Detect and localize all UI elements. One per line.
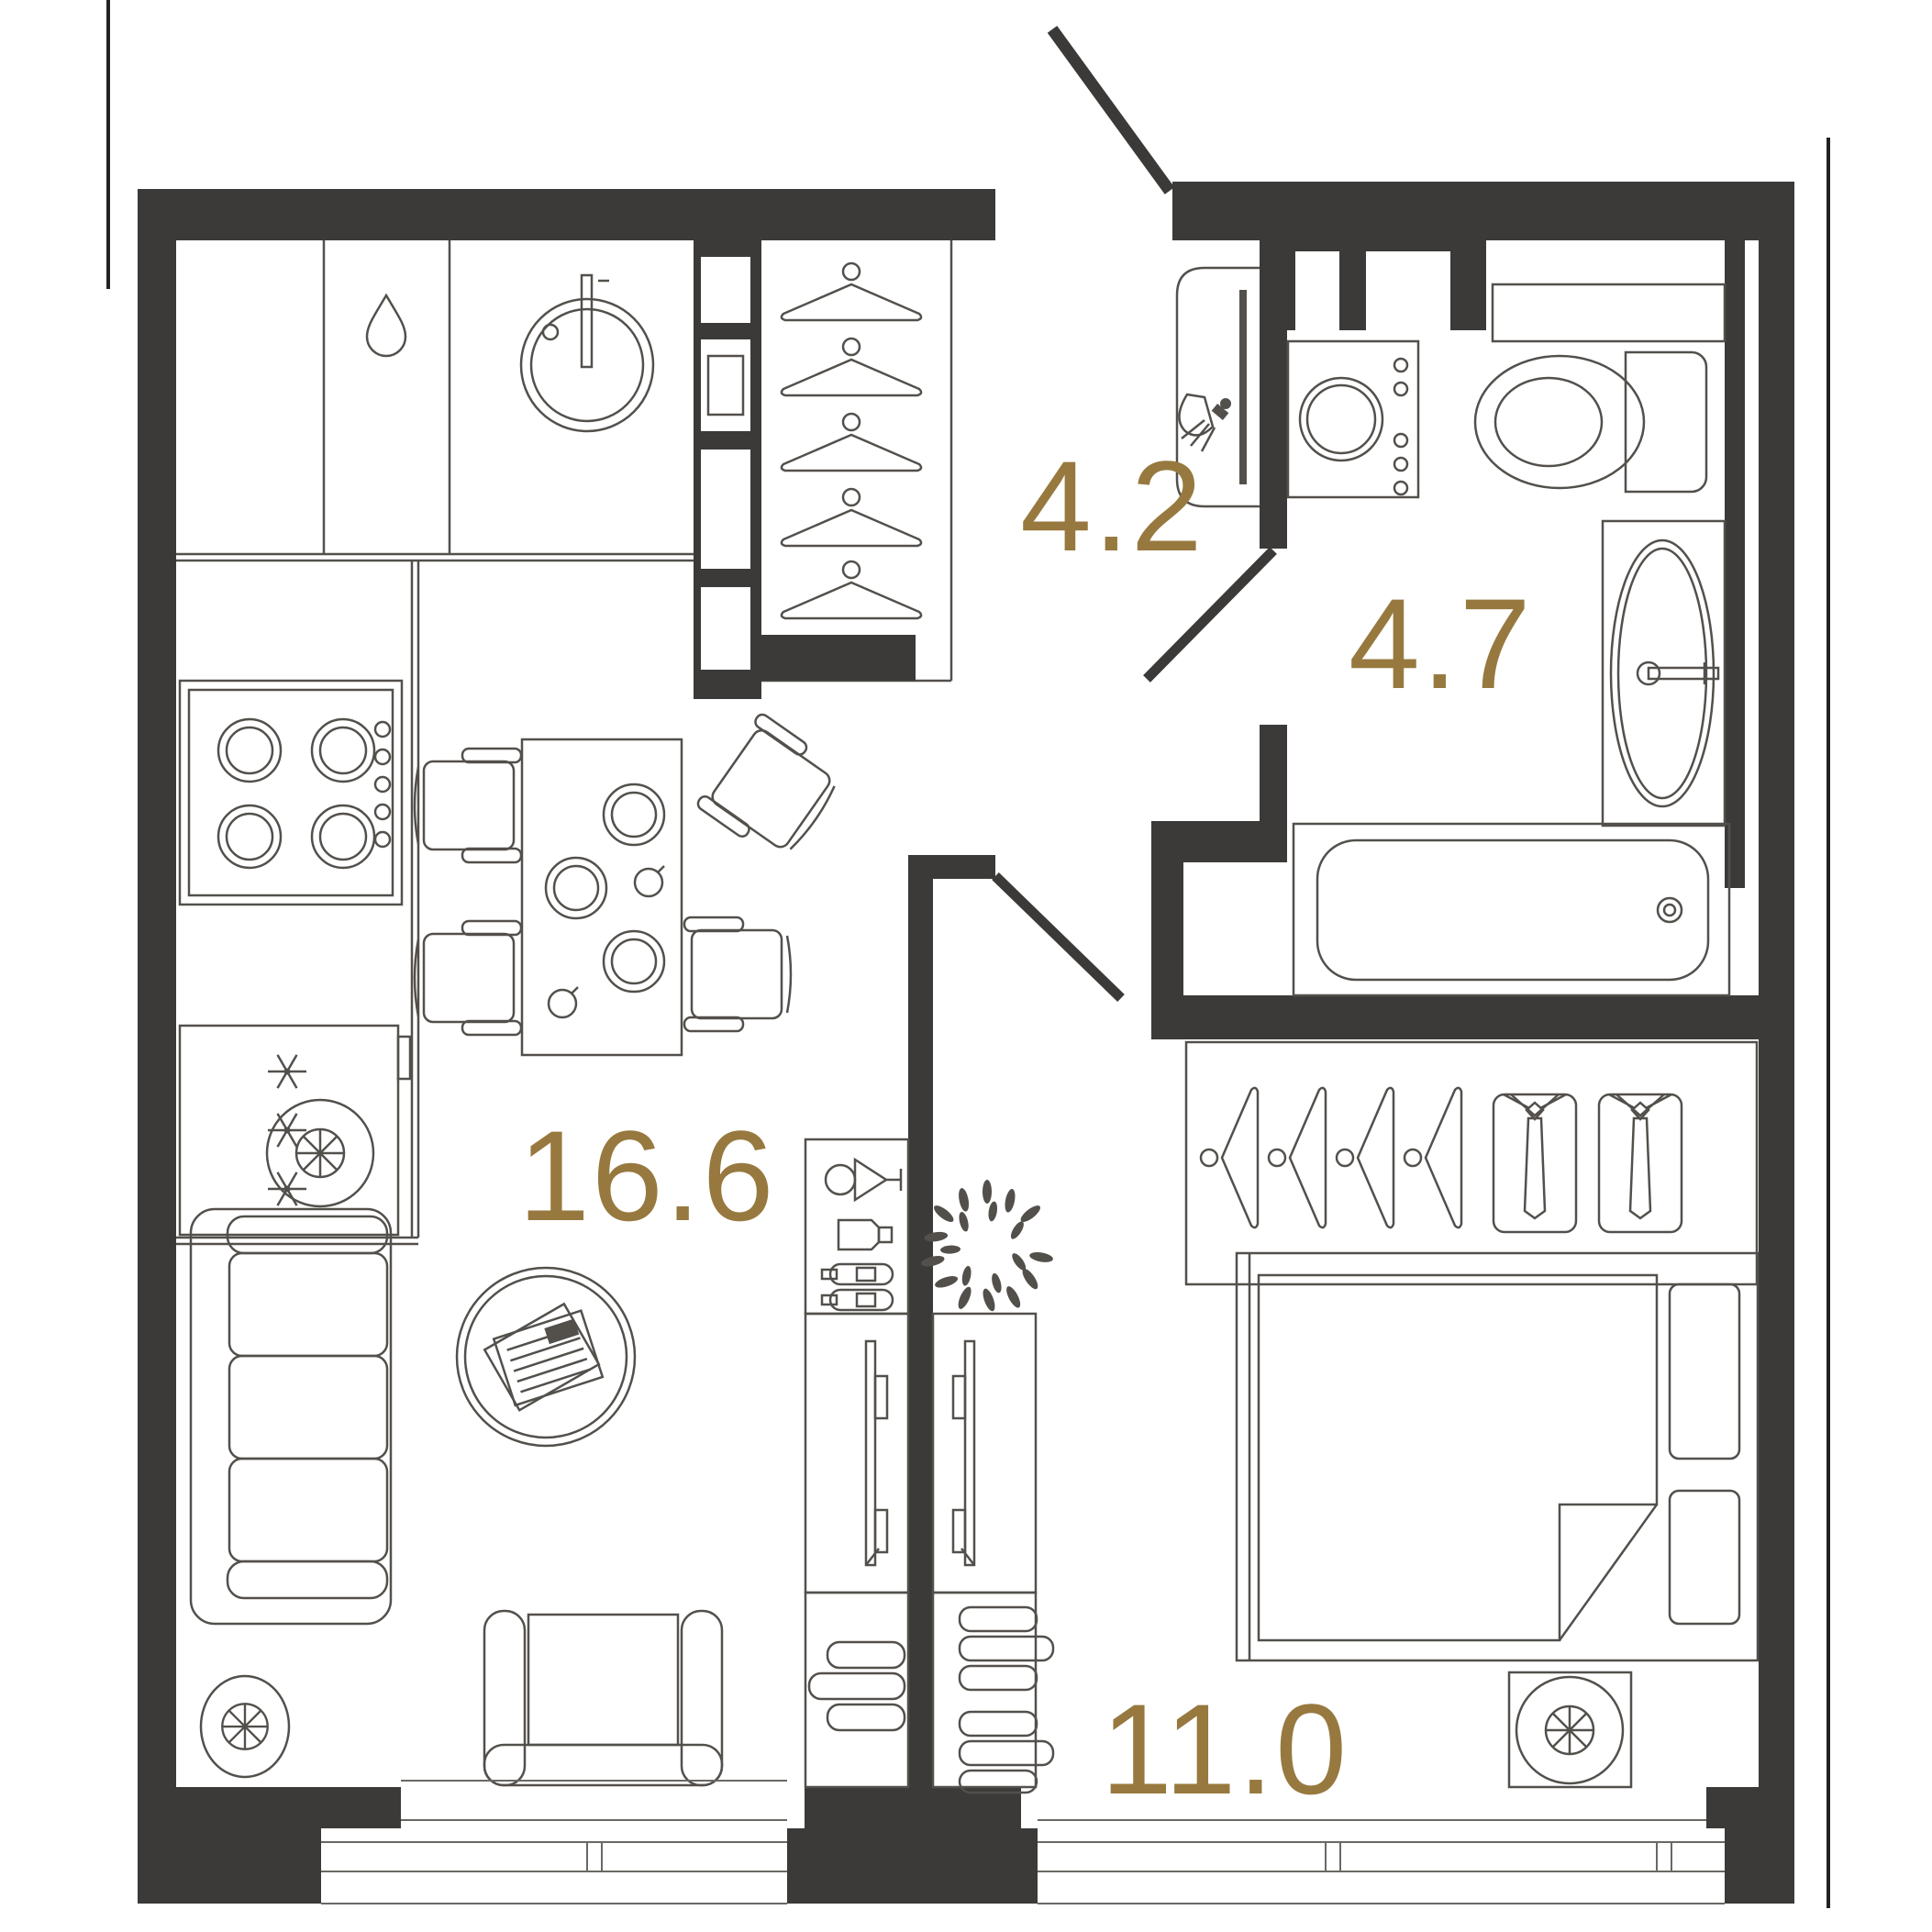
wardrobe-hanger-icon [1337, 1088, 1393, 1227]
dishwasher-droplet-icon [367, 295, 405, 356]
room-labels: 16.6 4.2 4.7 11.0 [518, 434, 1533, 1821]
dining-chair-icon [684, 917, 791, 1031]
sofa-icon [191, 1209, 391, 1624]
living-room [191, 712, 908, 1787]
duvet-fold-line [1560, 1505, 1657, 1640]
wardrobe-hanger-icon [1201, 1088, 1258, 1227]
living-tv-console [805, 1314, 908, 1787]
books-icon [809, 1642, 905, 1730]
console-shelf [805, 1593, 908, 1787]
dining-set [415, 712, 848, 1055]
floor-lamp-icon [267, 1100, 373, 1206]
dining-table [522, 739, 682, 1055]
martini-icon [826, 1160, 901, 1200]
dining-chair-icon [695, 712, 848, 866]
pillow-icon [1670, 1491, 1739, 1624]
fridge-icon [180, 1026, 410, 1235]
bedroom-door-leaf [995, 876, 1121, 998]
dining-chair-icon [415, 921, 521, 1035]
shirt-tie-icon [1599, 1094, 1682, 1232]
vanity-sink [1603, 521, 1725, 826]
armchair-icon [484, 1611, 722, 1785]
oven-tower [694, 240, 761, 699]
kitchen-counter [176, 240, 695, 1244]
tv-icon [953, 1341, 974, 1565]
ventilation-shaft [1260, 240, 1486, 330]
kitchen-sink [521, 275, 653, 431]
newspaper-icon [479, 1299, 605, 1415]
bedroom-closet [1186, 1042, 1757, 1284]
wreath-plant-icon [920, 1180, 1054, 1313]
shaker-icon [838, 1220, 892, 1249]
pillow-icon [1670, 1284, 1739, 1459]
entrance-door-leaf [1052, 29, 1170, 191]
stove-icon [180, 681, 402, 905]
wardrobe-hanger-icon [1405, 1088, 1461, 1227]
shirt-tie-icon [1493, 1094, 1576, 1232]
dining-chair-icon [415, 749, 521, 862]
bottle-icon [822, 1264, 893, 1310]
bar-cabinet [805, 1139, 908, 1314]
room-label-bathroom: 4.7 [1349, 572, 1533, 716]
tv-icon [866, 1341, 887, 1565]
kitchen [176, 240, 951, 1244]
floor-plan: 16.6 4.2 4.7 11.0 [0, 0, 1932, 1932]
hall-closet [760, 240, 951, 681]
mirror-icon [1239, 290, 1247, 484]
folded-duvet [1259, 1275, 1657, 1640]
room-label-bedroom: 11.0 [1101, 1677, 1349, 1821]
room-label-hallway: 4.2 [1020, 434, 1205, 578]
bathtub-icon [1294, 824, 1729, 995]
washing-machine-icon [1288, 341, 1418, 497]
double-bed-icon [1237, 1253, 1758, 1660]
books-icon [960, 1607, 1053, 1793]
site-boundary [108, 0, 1828, 1908]
coffee-table [457, 1268, 635, 1446]
bedroom-window [1038, 1820, 1725, 1904]
toilet-icon [1475, 284, 1725, 492]
room-label-living: 16.6 [518, 1104, 775, 1248]
wardrobe-hanger-icon [1269, 1088, 1326, 1227]
bedroom-tv-console [933, 1314, 1053, 1793]
bedside-lamp [1509, 1672, 1631, 1787]
floor-lamp-icon [201, 1676, 289, 1777]
